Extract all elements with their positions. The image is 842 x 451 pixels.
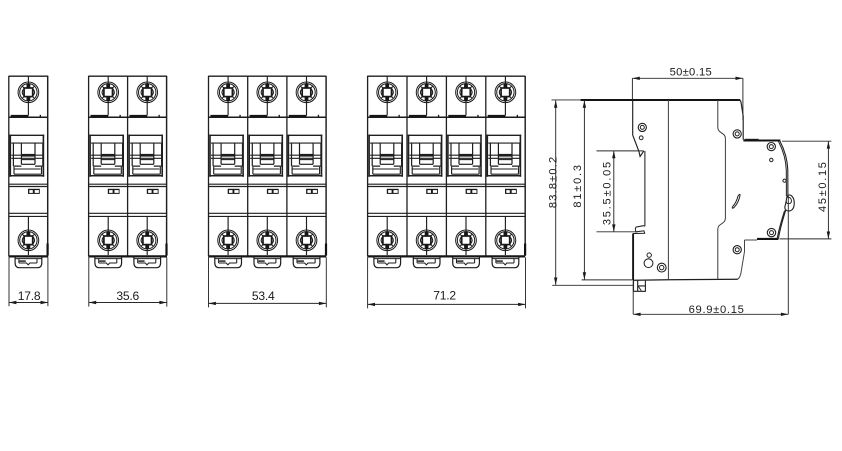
svg-text:81±0.3: 81±0.3 — [572, 163, 584, 207]
svg-text:35.6: 35.6 — [116, 289, 139, 303]
svg-text:69.9±0.15: 69.9±0.15 — [689, 304, 745, 316]
svg-text:83.8±0.2: 83.8±0.2 — [548, 156, 560, 208]
svg-text:35.5±0.05: 35.5±0.05 — [601, 160, 613, 225]
svg-text:45±0.15: 45±0.15 — [817, 160, 829, 212]
svg-text:17.8: 17.8 — [18, 289, 41, 303]
svg-text:71.2: 71.2 — [433, 289, 456, 303]
svg-text:53.4: 53.4 — [252, 289, 275, 303]
svg-text:50±0.15: 50±0.15 — [670, 67, 712, 79]
